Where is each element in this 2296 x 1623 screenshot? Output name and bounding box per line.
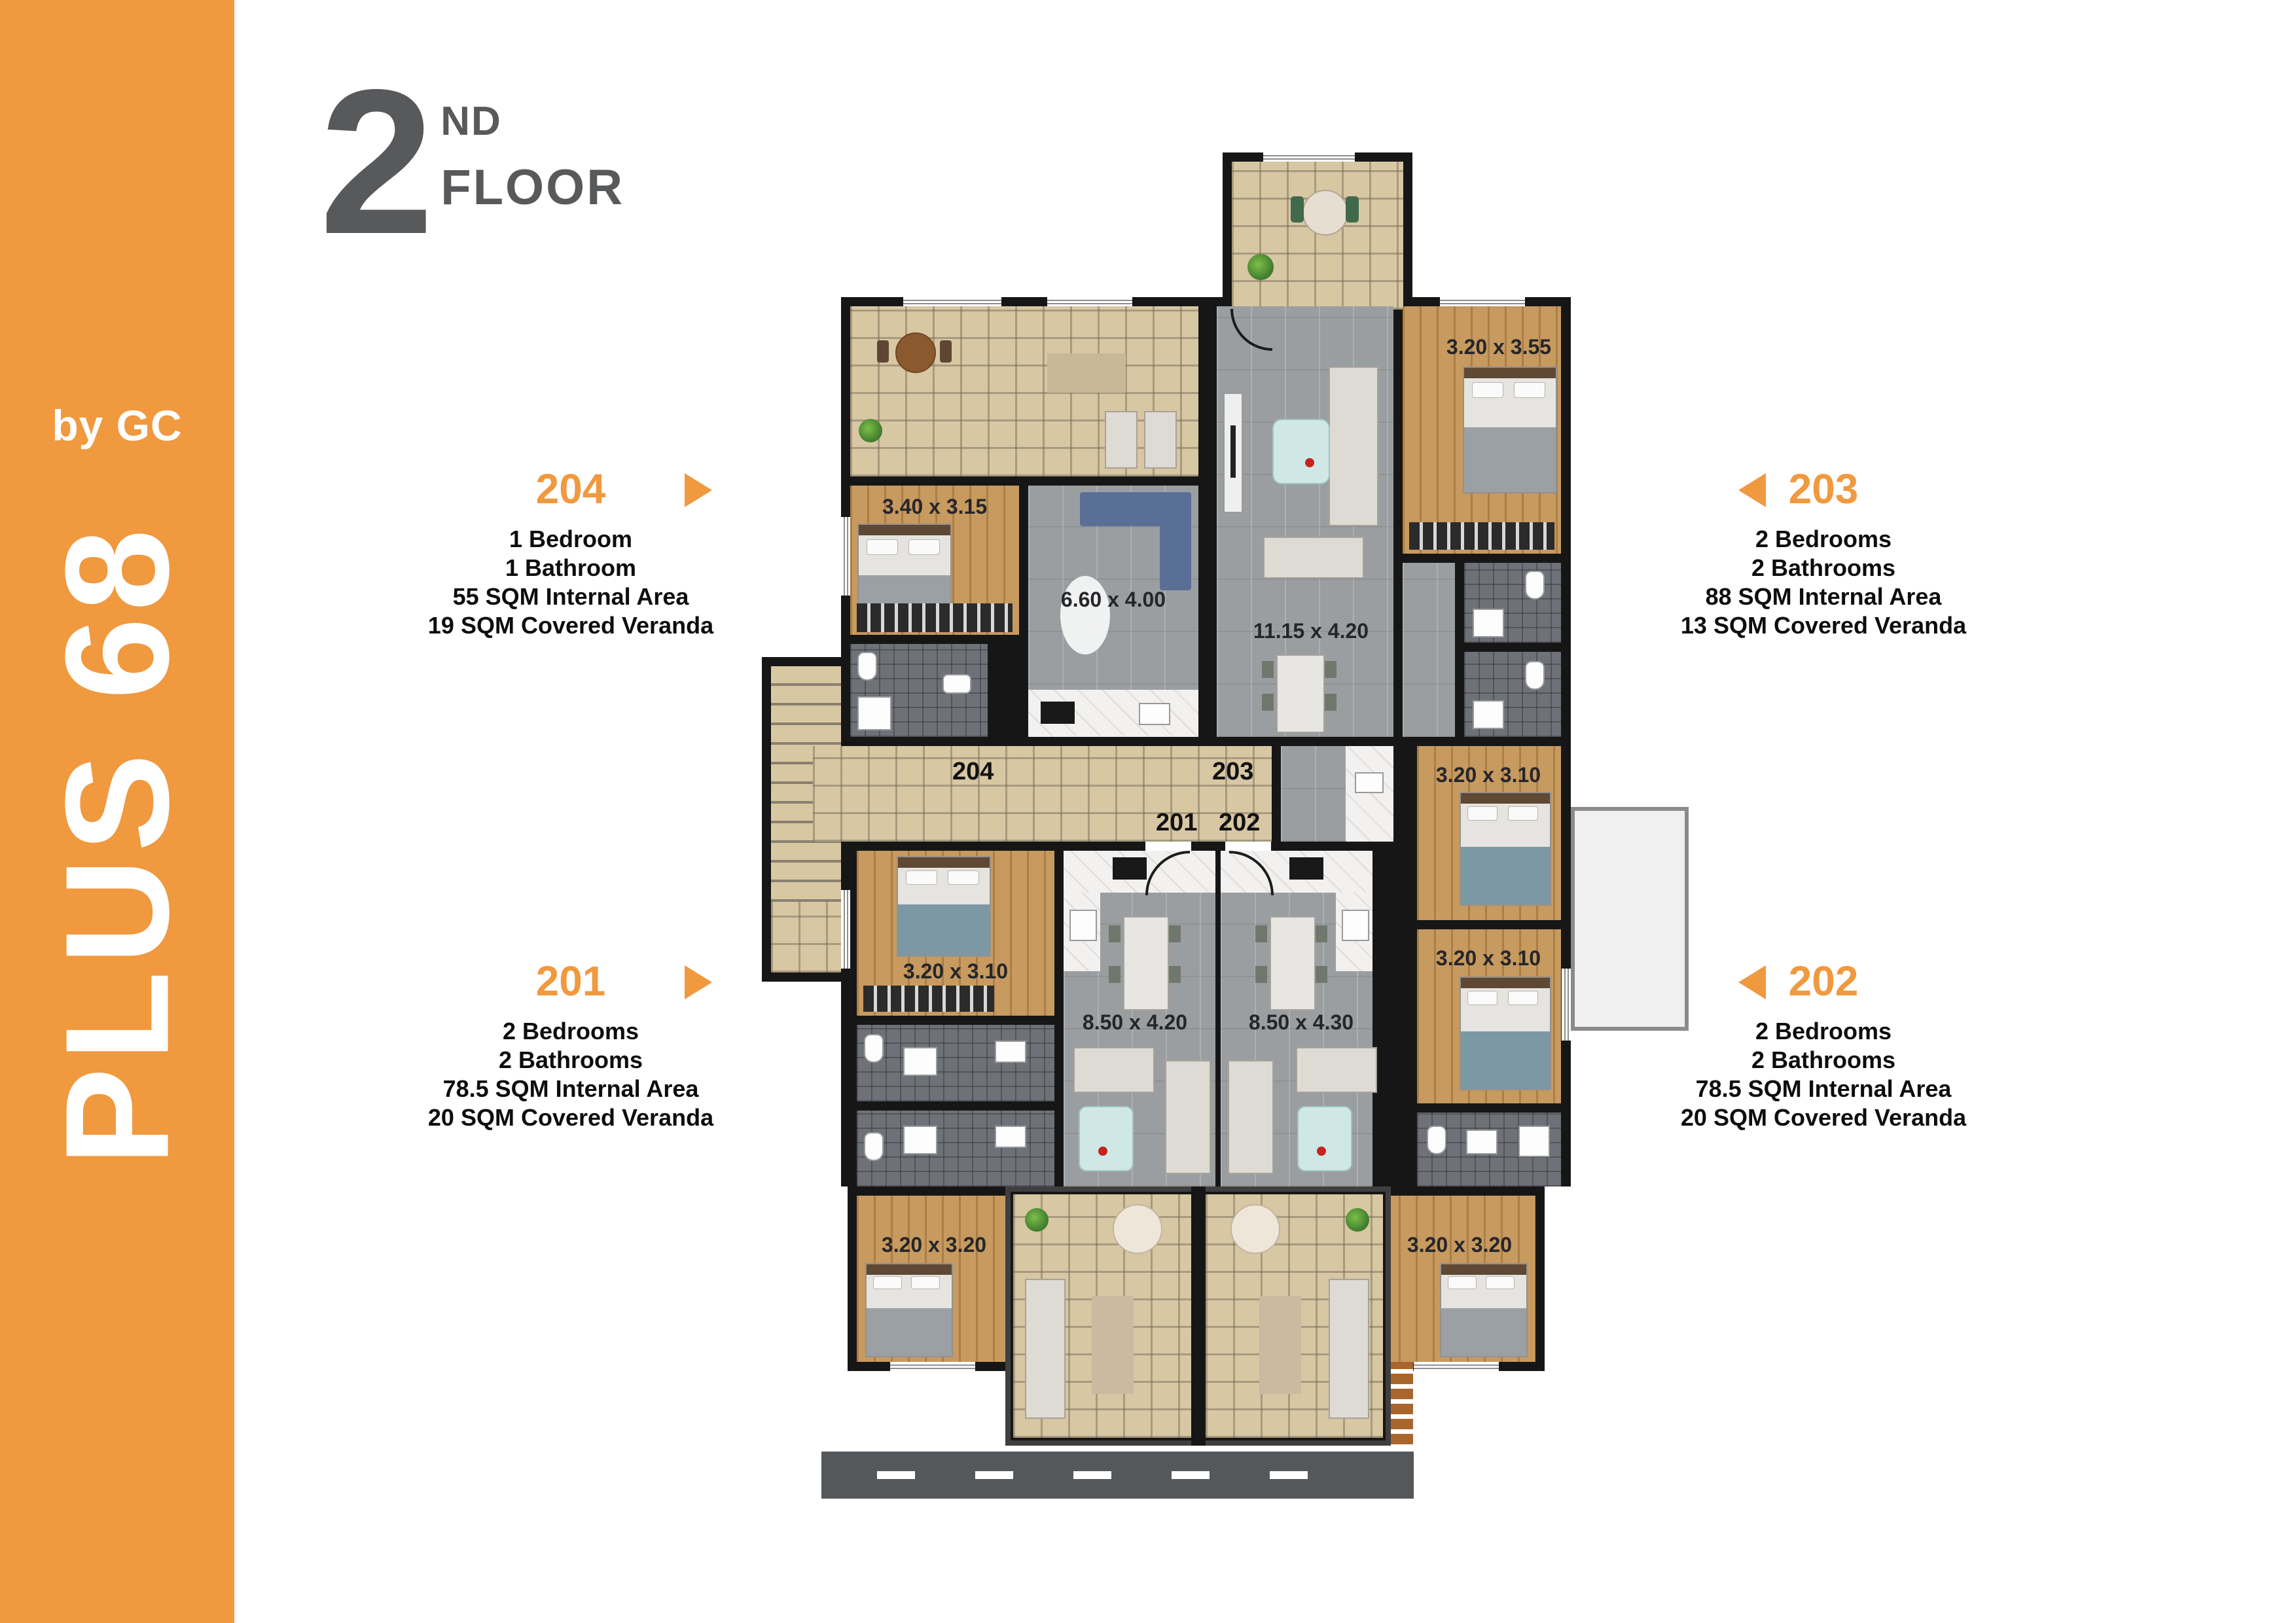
room-bathroom-201b — [857, 1111, 1054, 1186]
window — [890, 1362, 975, 1371]
decor-dot — [1098, 1147, 1107, 1156]
chair — [1255, 966, 1267, 983]
toilet-icon — [857, 652, 877, 681]
rug — [1259, 1296, 1301, 1394]
shower-icon — [857, 696, 891, 730]
sofa — [1165, 1060, 1211, 1174]
chair — [1316, 925, 1327, 942]
door-opening — [1145, 842, 1191, 851]
shower-icon — [1518, 1126, 1550, 1157]
hall-unit-201: 201 — [1156, 809, 1197, 837]
bed — [1440, 1263, 1528, 1357]
sink-icon — [1139, 703, 1170, 725]
sink-icon — [1355, 772, 1384, 793]
pergola-slats — [1391, 1362, 1413, 1444]
room-balcony-203 — [1232, 162, 1403, 310]
sink-icon — [995, 1126, 1026, 1148]
room-dimension-label: 3.40 x 3.15 — [882, 495, 987, 519]
room-dimension-label: 3.20 x 3.10 — [897, 959, 1014, 984]
veranda-204-rug — [1047, 353, 1126, 393]
room-dimension-label: 3.20 x 3.55 — [1427, 335, 1571, 359]
sofa — [1329, 366, 1378, 526]
sofa — [1329, 1279, 1369, 1419]
veranda-204-table — [895, 332, 936, 373]
window — [1440, 297, 1525, 306]
tv-icon — [1230, 425, 1236, 478]
room-dimension-label: 3.20 x 3.20 — [1401, 1233, 1518, 1257]
room-dimension-label: 11.15 x 4.20 — [1246, 619, 1376, 643]
window — [841, 517, 850, 596]
balcony-chair — [1346, 196, 1359, 223]
hall-unit-204: 204 — [952, 758, 994, 786]
window — [841, 890, 850, 969]
room-dimension-label: 8.50 x 4.30 — [1242, 1010, 1360, 1035]
bed — [1460, 976, 1551, 1090]
window — [1263, 152, 1355, 162]
veranda-204-chair — [877, 340, 889, 363]
room-dimension-label: 6.60 x 4.00 — [1054, 588, 1172, 612]
shower-icon — [1473, 609, 1504, 637]
chair — [1109, 925, 1121, 942]
veranda-table — [1230, 1204, 1280, 1254]
chair — [1255, 925, 1267, 942]
plant-icon — [1346, 1208, 1369, 1232]
dining-table — [1276, 654, 1325, 733]
sink-icon — [1466, 1130, 1498, 1154]
coffee-table — [1079, 1106, 1134, 1171]
lounge-chair — [1105, 411, 1138, 469]
window — [1414, 1362, 1499, 1371]
wardrobe — [857, 603, 1013, 632]
window — [903, 297, 1001, 306]
stair-landing — [771, 902, 841, 972]
floor-plan: 3.40 x 3.15 6.60 x 4.00 204 203 201 202 — [0, 0, 2296, 1623]
dining-table — [1123, 916, 1169, 1010]
toilet-icon — [864, 1034, 884, 1063]
stove-icon — [1289, 857, 1323, 880]
window — [1562, 969, 1571, 1041]
chair — [1316, 966, 1327, 983]
chair — [1262, 661, 1274, 678]
veranda-table — [1113, 1204, 1162, 1254]
veranda-divider-wall — [1191, 1186, 1206, 1446]
decor-dot — [1305, 458, 1314, 467]
chair — [1325, 694, 1336, 711]
chair — [1325, 661, 1336, 678]
sofa — [1228, 1060, 1274, 1174]
sofa — [1263, 537, 1364, 579]
shower-icon — [903, 1047, 937, 1076]
sofa — [1073, 1047, 1155, 1093]
kitchen-203 — [1346, 746, 1393, 842]
balcony-table — [1302, 190, 1348, 236]
sink-icon — [1069, 910, 1097, 941]
road-center-line — [877, 1471, 1361, 1479]
page: by GC PLUS 68 2 ND FLOOR 204 1 Bedroom 1… — [0, 0, 2296, 1623]
rug — [1092, 1296, 1134, 1394]
room-dimension-label: 3.20 x 3.10 — [1423, 946, 1554, 971]
sofa-blue — [1160, 492, 1191, 590]
bed — [865, 1263, 953, 1357]
lounge-chair — [1144, 411, 1177, 469]
hall-203 — [1403, 563, 1455, 737]
sofa — [1296, 1047, 1377, 1093]
window — [1047, 297, 1132, 306]
chair — [1262, 694, 1274, 711]
toilet-icon — [864, 1132, 884, 1161]
hall-unit-203: 203 — [1212, 758, 1253, 786]
bed — [1463, 366, 1557, 493]
toilet-icon — [1525, 571, 1545, 599]
stove-icon — [1041, 702, 1075, 724]
stove-icon — [1113, 857, 1147, 880]
corridor — [813, 746, 1272, 842]
sink-icon — [942, 674, 971, 694]
plant-icon — [859, 419, 882, 442]
wardrobe — [1409, 522, 1554, 550]
coffee-table — [1297, 1106, 1352, 1171]
toilet-icon — [1427, 1126, 1446, 1154]
plant-icon — [1025, 1208, 1049, 1232]
chair — [1169, 925, 1181, 942]
sofa — [1025, 1279, 1066, 1419]
adjacent-structure — [1571, 807, 1689, 1031]
decor-dot — [1317, 1147, 1326, 1156]
room-dimension-label: 3.20 x 3.10 — [1423, 763, 1554, 787]
room-dimension-label: 3.20 x 3.20 — [875, 1233, 993, 1257]
plant-icon — [1247, 254, 1274, 280]
coffee-table — [1272, 419, 1330, 484]
room-bathroom-201a — [857, 1025, 1054, 1101]
wardrobe — [863, 986, 994, 1012]
shower-icon — [1473, 700, 1504, 729]
room-dimension-label: 8.50 x 4.20 — [1076, 1010, 1194, 1035]
door-opening — [1225, 842, 1271, 851]
toilet-icon — [1525, 661, 1545, 690]
bed — [897, 856, 991, 957]
dining-table — [1270, 916, 1316, 1010]
bed — [1460, 792, 1551, 906]
sink-icon — [1342, 910, 1369, 941]
balcony-chair — [1291, 196, 1304, 223]
hall-unit-202: 202 — [1219, 809, 1260, 837]
shower-icon — [903, 1126, 937, 1154]
veranda-204-chair — [940, 340, 952, 363]
chair — [1109, 966, 1121, 983]
chair — [1169, 966, 1181, 983]
sink-icon — [995, 1041, 1026, 1063]
